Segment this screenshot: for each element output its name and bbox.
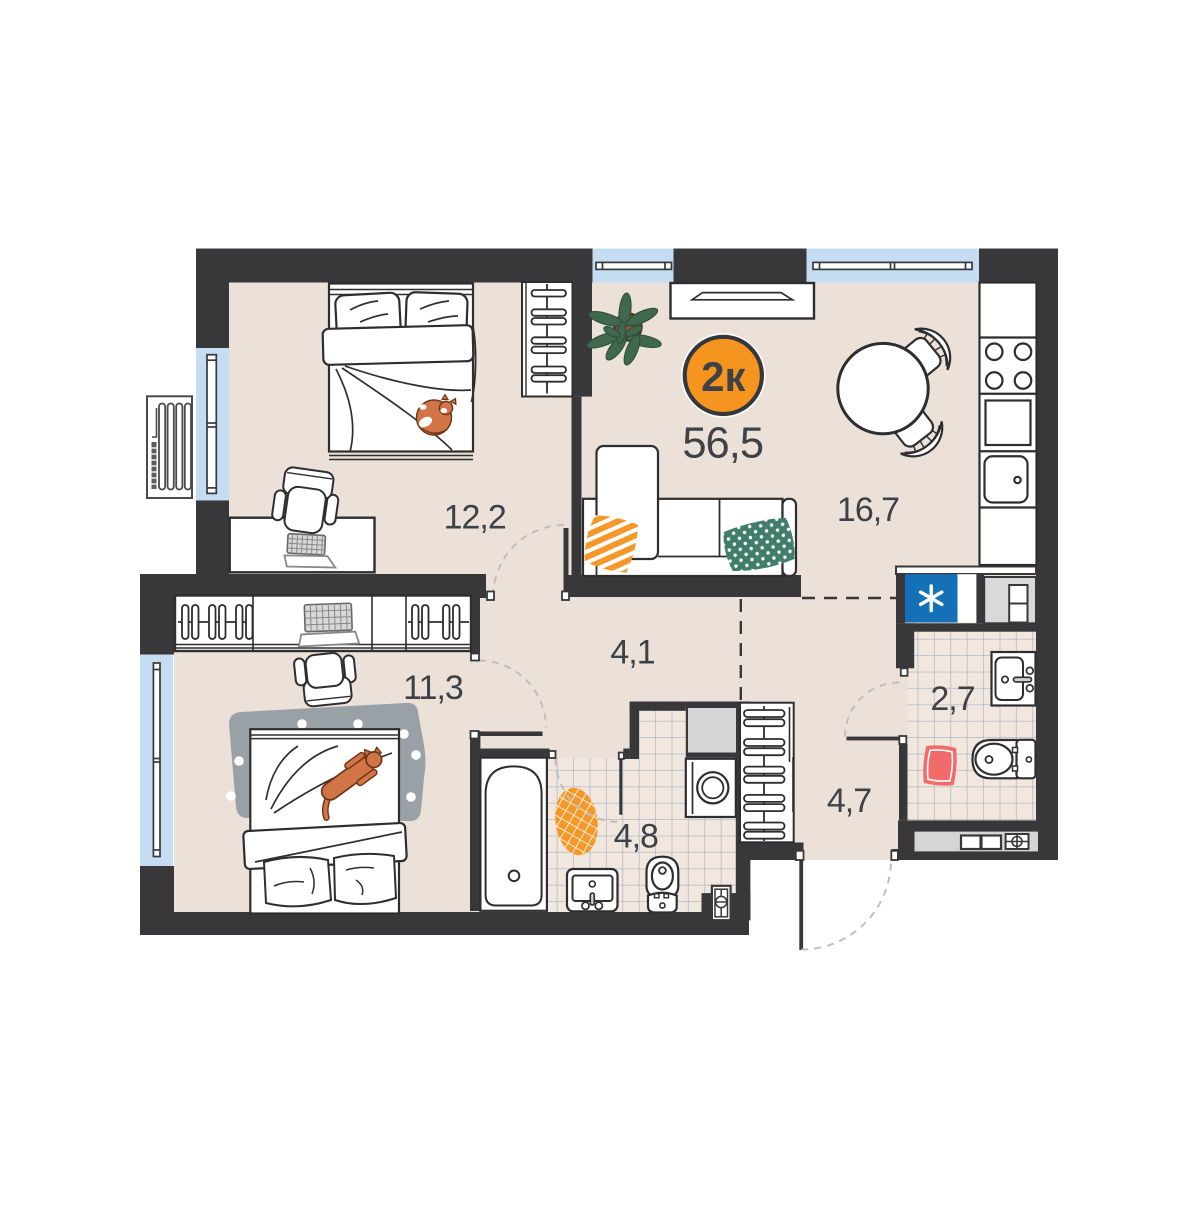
svg-text:2к: 2к [701,353,746,400]
svg-text:4,8: 4,8 [614,817,658,855]
svg-text:11,3: 11,3 [403,669,463,707]
svg-text:2,7: 2,7 [930,680,974,718]
svg-text:12,2: 12,2 [444,499,506,537]
svg-text:56,5: 56,5 [682,420,763,468]
svg-text:4,7: 4,7 [827,782,871,820]
svg-text:4,1: 4,1 [610,634,654,672]
svg-text:16,7: 16,7 [837,491,899,529]
